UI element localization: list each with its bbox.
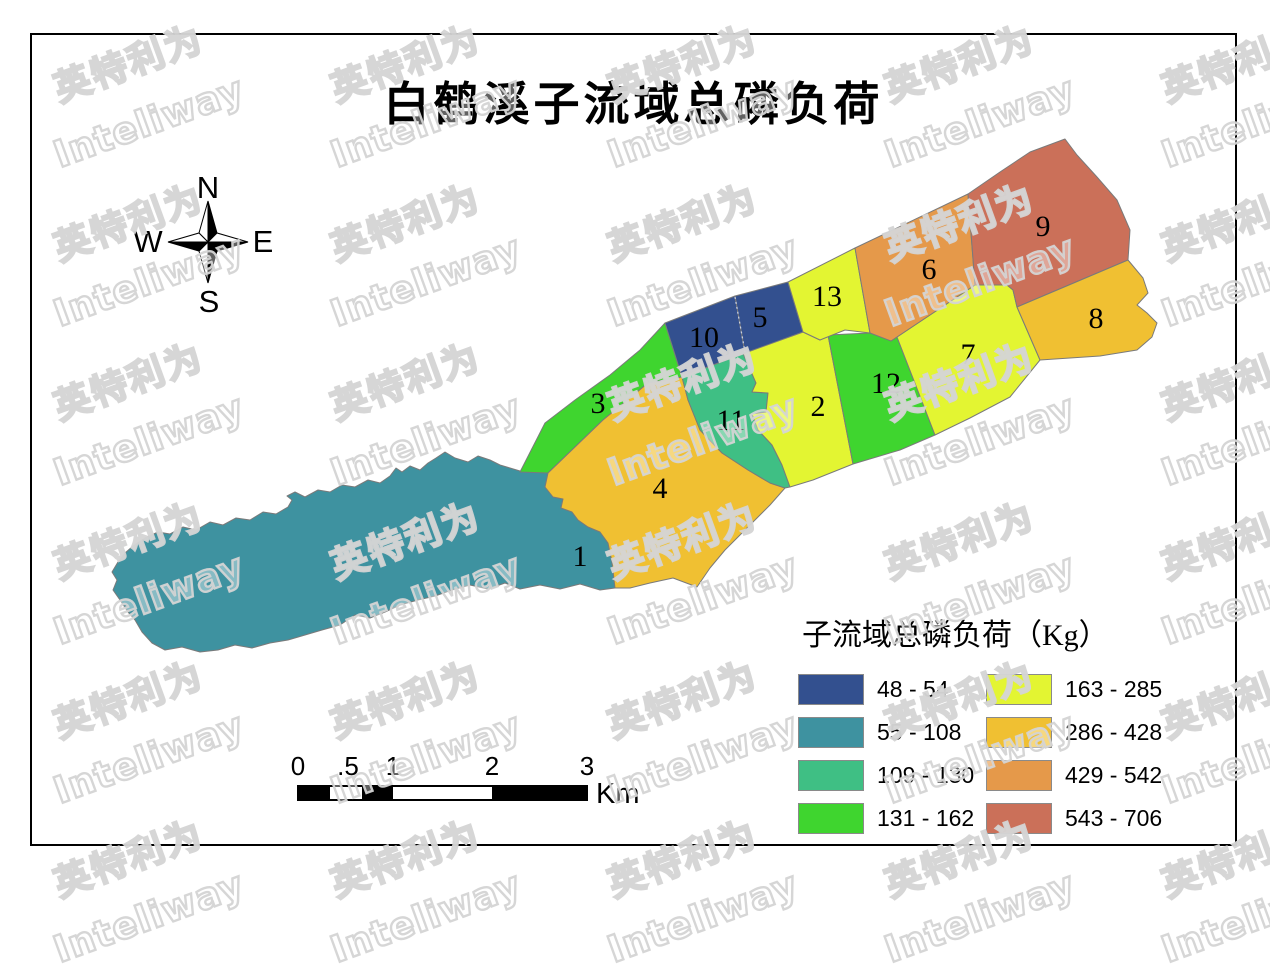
subwatershed-9-label: 9 [1036, 210, 1051, 243]
legend-item: 543 - 706 [986, 803, 1186, 834]
scale-bar-tick-3: 3 [580, 751, 594, 781]
legend-range-label: 48 - 54 [877, 676, 949, 703]
legend: 子流域总磷负荷（Kg） 48 - 5455 - 108109 - 130131 … [798, 610, 1186, 846]
subwatershed-regions [112, 139, 1157, 652]
compass-east-label: E [253, 224, 274, 259]
subwatershed-13-label: 13 [812, 280, 842, 313]
scale-bar-tick-.5: .5 [337, 751, 359, 781]
legend-title: 子流域总磷负荷（Kg） [798, 610, 1186, 654]
compass-rose-icon: N E S W [133, 170, 273, 319]
legend-item: 286 - 428 [986, 717, 1186, 748]
subwatershed-7-label: 7 [961, 338, 976, 371]
legend-range-label: 163 - 285 [1065, 676, 1162, 703]
legend-range-label: 131 - 162 [877, 805, 974, 832]
scale-bar-unit: Km [596, 778, 640, 810]
legend-column-right: 163 - 285286 - 428429 - 542543 - 706 [986, 674, 1186, 846]
compass-west-label: W [133, 224, 163, 259]
legend-swatch [798, 674, 864, 705]
legend-swatch [986, 674, 1052, 705]
legend-swatch [798, 717, 864, 748]
compass-north-label: N [197, 170, 219, 205]
legend-item: 163 - 285 [986, 674, 1186, 705]
legend-range-label: 55 - 108 [877, 719, 961, 746]
legend-item: 48 - 54 [798, 674, 986, 705]
scale-bar-tick-0: 0 [291, 751, 305, 781]
legend-item: 131 - 162 [798, 803, 986, 834]
subwatershed-4-label: 4 [653, 472, 668, 505]
legend-column-left: 48 - 5455 - 108109 - 130131 - 162 [798, 674, 986, 846]
subwatershed-1-label: 1 [573, 540, 588, 573]
scale-bar-labels: 0.5123 [291, 751, 594, 781]
legend-item: 109 - 130 [798, 760, 986, 791]
subwatershed-10-label: 10 [689, 321, 719, 354]
legend-columns: 48 - 5455 - 108109 - 130131 - 162 163 - … [798, 674, 1186, 846]
legend-swatch [986, 760, 1052, 791]
legend-range-label: 429 - 542 [1065, 762, 1162, 789]
subwatershed-3-label: 3 [591, 387, 606, 420]
subwatershed-1 [112, 452, 615, 652]
scale-bar-tick-2: 2 [485, 751, 499, 781]
legend-range-label: 543 - 706 [1065, 805, 1162, 832]
legend-item: 429 - 542 [986, 760, 1186, 791]
legend-item: 55 - 108 [798, 717, 986, 748]
subwatershed-11-label: 11 [717, 404, 746, 437]
subwatershed-5-label: 5 [753, 301, 768, 334]
legend-swatch [986, 717, 1052, 748]
compass-south-label: S [199, 284, 220, 319]
legend-swatch [798, 760, 864, 791]
subwatershed-8-label: 8 [1089, 302, 1104, 335]
subwatershed-12-label: 12 [871, 367, 901, 400]
legend-swatch [798, 803, 864, 834]
subwatershed-2-label: 2 [811, 390, 826, 423]
scale-bar: 0.5123 Km [291, 751, 640, 810]
legend-range-label: 286 - 428 [1065, 719, 1162, 746]
legend-range-label: 109 - 130 [877, 762, 974, 789]
subwatershed-6-label: 6 [922, 253, 937, 286]
map-document: { "title": "白鹤溪子流域总磷负荷", "compass": { "n… [0, 0, 1270, 897]
legend-swatch [986, 803, 1052, 834]
scale-bar-tick-1: 1 [386, 751, 400, 781]
